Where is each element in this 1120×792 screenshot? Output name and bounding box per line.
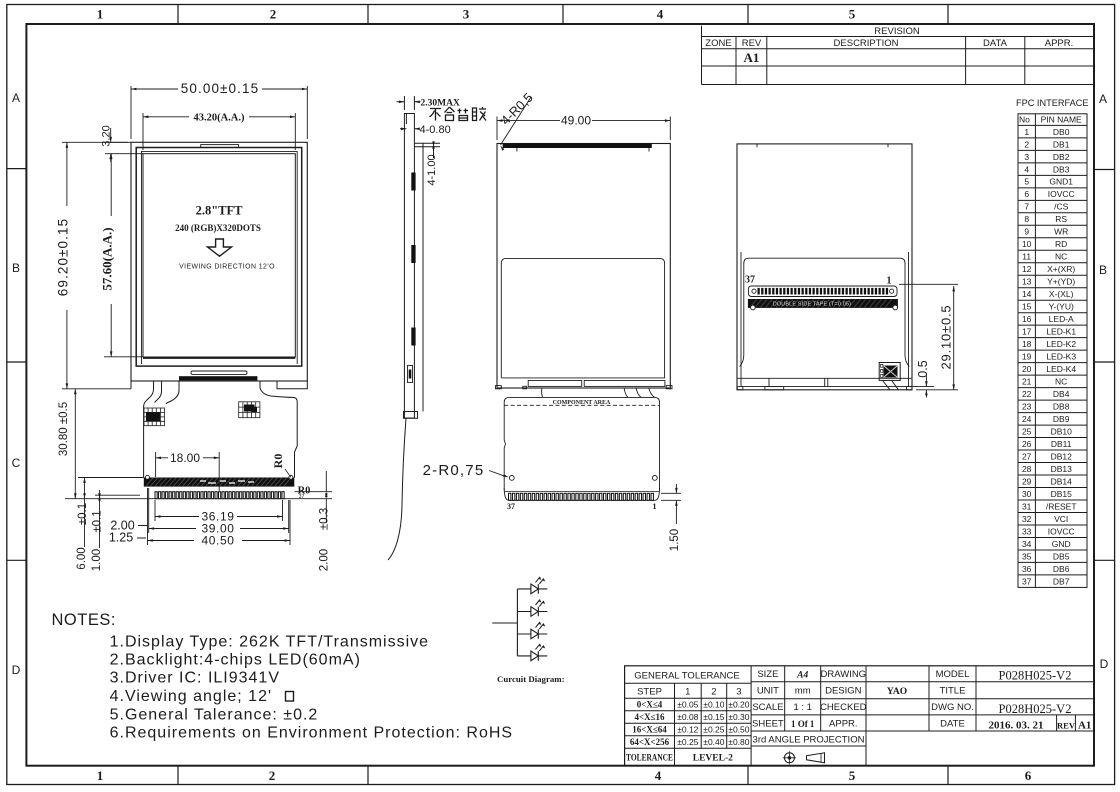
svg-text:DRAWING: DRAWING	[821, 669, 867, 680]
svg-text:ZONE: ZONE	[705, 38, 731, 49]
svg-text:LED-K3: LED-K3	[1046, 352, 1076, 362]
svg-text:A4: A4	[796, 671, 808, 681]
svg-text:240 (RGB)X320DOTS: 240 (RGB)X320DOTS	[175, 223, 261, 233]
svg-text:27: 27	[1022, 451, 1032, 461]
svg-text:17: 17	[1022, 327, 1032, 337]
svg-text:30.80 ±0.5: 30.80 ±0.5	[58, 402, 70, 456]
svg-text:1 : 1: 1 : 1	[793, 702, 812, 713]
svg-text:4-0.80: 4-0.80	[420, 124, 451, 136]
svg-text:40.50: 40.50	[201, 533, 234, 547]
svg-text:±0.12: ±0.12	[677, 725, 698, 735]
svg-text:NC: NC	[1055, 252, 1067, 262]
svg-text:25: 25	[1022, 426, 1032, 436]
svg-text:±0.1: ±0.1	[92, 510, 104, 532]
svg-text:DOUBLE SIDE TAPE (T=0.05): DOUBLE SIDE TAPE (T=0.05)	[773, 302, 851, 308]
svg-text:4-R0,5: 4-R0,5	[498, 90, 536, 128]
svg-text:29: 29	[1022, 476, 1032, 486]
svg-text:64<X<256: 64<X<256	[630, 737, 670, 747]
svg-text:29.10±0.5: 29.10±0.5	[939, 305, 954, 370]
svg-text:FPC INTERFACE: FPC INTERFACE	[1016, 98, 1089, 108]
svg-text:DB8: DB8	[1053, 401, 1070, 411]
svg-text:DB0: DB0	[1053, 127, 1070, 137]
svg-text:REV: REV	[1057, 721, 1076, 731]
svg-text:1: 1	[97, 768, 104, 783]
svg-text:DB13: DB13	[1051, 464, 1073, 474]
svg-text:37: 37	[1022, 576, 1032, 586]
svg-text:3.Driver IC: ILI9341V: 3.Driver IC: ILI9341V	[110, 670, 280, 687]
svg-text:8: 8	[1024, 214, 1029, 224]
svg-text:1: 1	[1024, 127, 1029, 137]
svg-text:24: 24	[1022, 414, 1032, 424]
svg-text:±0.08: ±0.08	[677, 712, 698, 722]
svg-text:4: 4	[655, 768, 662, 783]
svg-text:±0.25: ±0.25	[703, 725, 724, 735]
svg-text:NC: NC	[1055, 377, 1067, 387]
svg-text:X+(XR): X+(XR)	[1047, 264, 1075, 274]
svg-text:6: 6	[1025, 768, 1032, 783]
svg-text:5: 5	[1024, 177, 1029, 187]
svg-text:4: 4	[657, 7, 664, 22]
svg-text:2: 2	[269, 768, 276, 783]
svg-text:12: 12	[1022, 264, 1032, 274]
svg-text:1: 1	[653, 502, 657, 511]
svg-text:DWG NO.: DWG NO.	[931, 702, 974, 713]
svg-text:DATE: DATE	[940, 719, 965, 730]
svg-text:No: No	[1019, 115, 1030, 125]
svg-text:±0.15: ±0.15	[703, 712, 724, 722]
svg-text:GND: GND	[1052, 539, 1071, 549]
svg-text:DB11: DB11	[1051, 439, 1072, 449]
svg-text:37: 37	[507, 502, 515, 511]
svg-text:D: D	[1100, 657, 1109, 671]
svg-text:DB1: DB1	[1053, 139, 1070, 149]
svg-text:4: 4	[1024, 164, 1029, 174]
svg-text:±0.20: ±0.20	[728, 700, 749, 710]
svg-text:DESCRIPTION: DESCRIPTION	[834, 38, 899, 49]
svg-text:SIZE: SIZE	[757, 669, 778, 680]
svg-text:69.20±0.15: 69.20±0.15	[56, 218, 71, 296]
svg-text:37: 37	[745, 275, 755, 286]
svg-text:20: 20	[1022, 364, 1032, 374]
svg-text:2016. 03. 21: 2016. 03. 21	[989, 720, 1044, 732]
svg-text:Y+(YD): Y+(YD)	[1047, 277, 1075, 287]
svg-text:LED-K2: LED-K2	[1046, 339, 1076, 349]
svg-text:DB9: DB9	[1053, 414, 1070, 424]
svg-text:DB12: DB12	[1051, 451, 1073, 461]
svg-text:TOLERANCE: TOLERANCE	[626, 753, 673, 763]
svg-text:±0.25: ±0.25	[677, 737, 698, 747]
svg-text:APPR.: APPR.	[1045, 38, 1074, 49]
svg-text:IOVCC: IOVCC	[1048, 189, 1075, 199]
svg-text:Y-(YU): Y-(YU)	[1049, 302, 1074, 312]
svg-text:3: 3	[736, 687, 741, 698]
svg-text:35: 35	[1022, 551, 1032, 561]
svg-text:4-1.00: 4-1.00	[426, 154, 438, 185]
svg-text:3rd ANGLE PROJECTION: 3rd ANGLE PROJECTION	[753, 735, 865, 746]
svg-text:±0.1: ±0.1	[77, 503, 89, 525]
svg-text:13: 13	[1022, 277, 1032, 287]
svg-text:6: 6	[1024, 189, 1029, 199]
svg-text:TITLE: TITLE	[940, 686, 966, 697]
svg-text:2: 2	[1024, 139, 1029, 149]
svg-text:DB14: DB14	[1051, 476, 1073, 486]
svg-text:NOTES:: NOTES:	[52, 611, 116, 629]
svg-text:15: 15	[1022, 302, 1032, 312]
svg-text:30: 30	[1022, 489, 1032, 499]
svg-text:±0.50: ±0.50	[728, 725, 749, 735]
svg-text:A: A	[1099, 92, 1107, 106]
svg-text:2.00: 2.00	[319, 549, 331, 571]
svg-text:±0.05: ±0.05	[677, 700, 698, 710]
svg-text:11: 11	[1022, 252, 1031, 262]
svg-text:19: 19	[1022, 352, 1032, 362]
svg-text:1: 1	[685, 687, 690, 698]
svg-text:CHECKED: CHECKED	[820, 702, 867, 713]
svg-text:±0.30: ±0.30	[728, 712, 749, 722]
svg-text:DB10: DB10	[1051, 426, 1073, 436]
svg-text:DB7: DB7	[1053, 576, 1070, 586]
svg-text:3: 3	[1024, 152, 1029, 162]
svg-text:±0.40: ±0.40	[703, 737, 724, 747]
svg-text:P028H025-V2: P028H025-V2	[999, 669, 1072, 683]
svg-text:22: 22	[1022, 389, 1032, 399]
svg-text:RS: RS	[1055, 214, 1067, 224]
svg-text:1: 1	[97, 7, 104, 22]
svg-text:APPR.: APPR.	[829, 719, 858, 730]
svg-text:±0.10: ±0.10	[703, 700, 724, 710]
svg-text:4<X≤16: 4<X≤16	[634, 712, 665, 722]
svg-text:9: 9	[1024, 227, 1029, 237]
svg-text:WR: WR	[1054, 227, 1068, 237]
svg-text:YAO: YAO	[887, 687, 907, 697]
svg-text:18.00: 18.00	[170, 451, 200, 465]
svg-text:50.00±0.15: 50.00±0.15	[181, 81, 259, 96]
svg-text:LEVEL-2: LEVEL-2	[693, 754, 733, 764]
svg-text:/CS: /CS	[1054, 202, 1069, 212]
svg-text:REVISION: REVISION	[874, 26, 920, 37]
svg-text:DB3: DB3	[1053, 164, 1070, 174]
svg-text:DATA: DATA	[983, 38, 1008, 49]
svg-text:0<X≤4: 0<X≤4	[637, 700, 663, 710]
svg-text:LED-A: LED-A	[1049, 314, 1074, 324]
svg-text:DESIGN: DESIGN	[825, 686, 862, 697]
svg-text:2: 2	[270, 7, 277, 22]
svg-text:RD: RD	[1055, 239, 1067, 249]
svg-text:33: 33	[1022, 526, 1032, 536]
svg-text:VIEWING DIRECTION 12'O: VIEWING DIRECTION 12'O	[179, 264, 275, 271]
svg-text:DB5: DB5	[1053, 551, 1070, 561]
svg-text:2-R0,75: 2-R0,75	[423, 462, 485, 479]
svg-text:B: B	[12, 261, 20, 275]
svg-text:LED-K4: LED-K4	[1046, 364, 1076, 374]
svg-text:32: 32	[1022, 514, 1032, 524]
svg-text:31: 31	[1022, 501, 1032, 511]
svg-text:28: 28	[1022, 464, 1032, 474]
svg-text:1: 1	[887, 276, 892, 287]
svg-text:1.50: 1.50	[669, 529, 681, 551]
svg-text:±0.3: ±0.3	[319, 508, 331, 530]
svg-text:VCI: VCI	[1054, 514, 1068, 524]
svg-text:DB15: DB15	[1051, 489, 1073, 499]
svg-text:X-(XL): X-(XL)	[1049, 289, 1074, 299]
svg-text:±0.80: ±0.80	[728, 737, 749, 747]
svg-text:STEP: STEP	[637, 687, 662, 698]
svg-text:36: 36	[1022, 564, 1032, 574]
svg-text:SCALE: SCALE	[752, 702, 783, 713]
svg-text:IOVCC: IOVCC	[1048, 526, 1075, 536]
svg-text:DB4: DB4	[1053, 389, 1070, 399]
svg-text:21: 21	[1022, 377, 1032, 387]
svg-text:mm: mm	[795, 686, 811, 697]
svg-text:3.20: 3.20	[101, 125, 113, 146]
svg-text:Curcuit Diagram:: Curcuit Diagram:	[497, 674, 565, 684]
svg-text:A: A	[12, 91, 20, 105]
svg-text:DB6: DB6	[1053, 564, 1070, 574]
svg-text:2.Backlight:4-chips LED(60mA): 2.Backlight:4-chips LED(60mA)	[110, 652, 361, 669]
svg-text:2: 2	[711, 687, 716, 698]
svg-text:26: 26	[1022, 439, 1032, 449]
svg-text:P028H025-V2: P028H025-V2	[999, 702, 1072, 716]
svg-text:1.00: 1.00	[91, 549, 103, 571]
svg-text:49.00: 49.00	[561, 114, 591, 128]
svg-text:14: 14	[1022, 289, 1032, 299]
svg-text:1 Of 1: 1 Of 1	[791, 719, 815, 729]
svg-text:5.General Talerance: ±0.2: 5.General Talerance: ±0.2	[110, 707, 319, 724]
svg-text:/RESET: /RESET	[1046, 501, 1077, 511]
svg-text:UNIT: UNIT	[757, 686, 779, 697]
svg-text:1.Display Type: 262K TFT/Trans: 1.Display Type: 262K TFT/Transmissive	[110, 634, 429, 651]
svg-text:18: 18	[1022, 339, 1032, 349]
svg-text:SHEET: SHEET	[752, 719, 784, 730]
svg-text:B: B	[1099, 263, 1107, 277]
svg-text:57.60(A.A.): 57.60(A.A.)	[100, 227, 115, 290]
svg-text:MODEL: MODEL	[936, 669, 970, 680]
svg-text:34: 34	[1022, 539, 1032, 549]
svg-text:2.8"TFT: 2.8"TFT	[196, 204, 244, 218]
svg-text:2.30MAX: 2.30MAX	[421, 99, 460, 109]
svg-text:4.Viewing angle; 12': 4.Viewing angle; 12'	[110, 688, 272, 705]
svg-text:GENERAL TOLERANCE: GENERAL TOLERANCE	[634, 671, 739, 682]
svg-text:D: D	[12, 663, 21, 677]
svg-text:6.Requirements on Environment: 6.Requirements on Environment Protection…	[110, 725, 514, 742]
svg-text:R0: R0	[271, 454, 285, 469]
svg-text:16: 16	[1022, 314, 1032, 324]
svg-text:3: 3	[463, 7, 470, 22]
svg-text:5: 5	[849, 7, 856, 22]
svg-text:PIN NAME: PIN NAME	[1041, 115, 1082, 125]
svg-text:LED-K1: LED-K1	[1046, 327, 1076, 337]
svg-text:16<X≤64: 16<X≤64	[632, 725, 667, 735]
svg-text:7: 7	[1024, 202, 1029, 212]
svg-text:37: 37	[299, 494, 305, 500]
svg-text:10: 10	[1022, 239, 1032, 249]
svg-text:C: C	[12, 456, 21, 470]
svg-text:A1: A1	[744, 50, 760, 65]
svg-text:DB2: DB2	[1053, 152, 1070, 162]
svg-text:0.5: 0.5	[916, 360, 930, 377]
svg-text:43.20(A.A.): 43.20(A.A.)	[193, 113, 245, 124]
svg-text:REV: REV	[742, 38, 762, 49]
svg-text:A1: A1	[1078, 720, 1091, 732]
svg-text:6.00: 6.00	[76, 547, 88, 569]
svg-text:23: 23	[1022, 401, 1032, 411]
svg-text:1.25: 1.25	[109, 531, 133, 545]
svg-text:5: 5	[849, 768, 856, 783]
svg-text:GND1: GND1	[1049, 177, 1073, 187]
svg-text:COMPONENT AREA: COMPONENT AREA	[553, 400, 611, 406]
